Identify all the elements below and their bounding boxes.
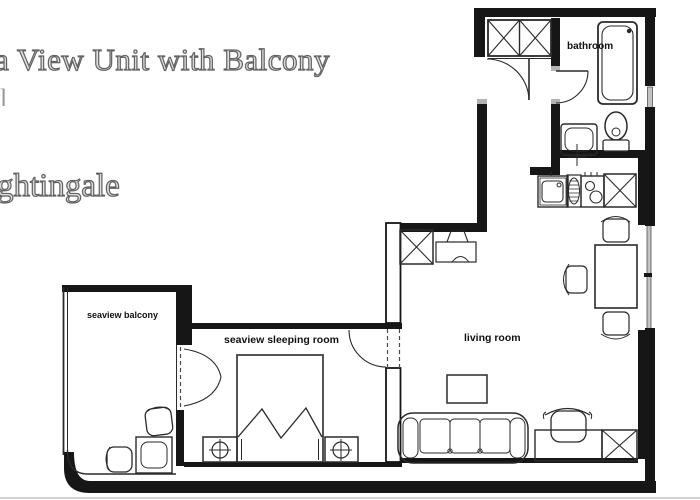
dining-table <box>595 245 637 308</box>
console-chair-seat-arc <box>452 257 469 263</box>
kitchen-drainer-unit <box>567 175 581 207</box>
wall-bathroom-bottom <box>551 150 646 158</box>
kitchen-sink-unit <box>538 171 568 207</box>
stove-burner-large <box>590 191 602 203</box>
bathroom-sink <box>561 124 597 166</box>
floorplan-screenshot: a View Unit with Balcony l ghtingale <box>0 0 700 500</box>
kitchen-sink-drain <box>557 183 561 187</box>
dining-set <box>564 217 638 340</box>
label-living: living room <box>464 332 521 344</box>
console-desk-top <box>436 242 476 262</box>
label-bedroom: seaview sleeping room <box>224 334 339 346</box>
sofa-cushion-1 <box>420 419 450 453</box>
bathroom-window-cap-top <box>645 82 655 86</box>
living-room-window <box>644 221 655 333</box>
drainer-oval <box>569 178 580 204</box>
nightstand-left-lamp-cross <box>209 439 231 461</box>
dining-chair-bottom <box>603 312 629 335</box>
bathtub <box>598 22 637 104</box>
sofa-cushion-3 <box>480 419 510 453</box>
corner-cabinet-x <box>602 430 637 461</box>
work-desk <box>535 409 602 462</box>
living-window-glass <box>647 225 651 330</box>
wall-hall-left <box>474 8 485 57</box>
entry-door <box>487 59 529 100</box>
walls <box>62 8 656 493</box>
balcony-table <box>136 437 172 473</box>
wall-right-inner-ledge-upper <box>638 157 646 225</box>
sofa-arm-right <box>510 418 525 458</box>
bedroom-door <box>349 329 400 368</box>
bathroom-door-swing-arc <box>556 71 588 103</box>
living-window-mid-tick <box>644 273 652 277</box>
sofa-arm-left <box>403 418 418 458</box>
toilet-drain <box>612 128 620 136</box>
wall-kitchen-stub <box>530 167 560 175</box>
bathroom-door <box>556 71 588 103</box>
balcony-door-arc-lower <box>184 377 221 406</box>
label-balcony: seaview balcony <box>87 310 158 320</box>
top-cabinet-x <box>400 230 433 264</box>
wall-corridor-left <box>477 103 487 227</box>
balcony-furniture <box>106 406 173 473</box>
balcony-table-inner <box>141 442 167 468</box>
bathtub-outer <box>598 22 637 104</box>
balcony-bottom-line <box>68 450 177 474</box>
stove-burner-small <box>586 182 595 191</box>
balcony-french-door <box>177 345 222 410</box>
console-desk <box>436 231 476 262</box>
balcony-door-arc-upper <box>184 349 221 377</box>
bathtub-inner <box>602 26 633 100</box>
coffee-table <box>447 375 487 403</box>
wall-right-inner-ledge-lower <box>638 330 646 459</box>
drainer-box <box>567 175 581 207</box>
bathtub-drain <box>627 29 631 33</box>
living-window-cap-bottom <box>645 328 655 333</box>
bathroom-window-glass <box>648 87 653 108</box>
nightstand-right <box>325 437 358 462</box>
balcony-chair-upper-seat <box>144 407 173 437</box>
wall-right-bathroom-upper <box>645 8 655 86</box>
wall-bottom <box>88 481 656 493</box>
doors <box>177 59 589 410</box>
balcony-chair-upper <box>144 406 173 437</box>
living-window-cap-top <box>645 221 655 226</box>
sink-basin <box>565 128 593 151</box>
wall-bedroom-top <box>176 323 402 329</box>
drainer-hatch <box>569 181 579 201</box>
shade-corridor-left <box>477 99 487 104</box>
bathroom-window <box>645 82 655 111</box>
label-bathroom: bathroom <box>567 41 613 52</box>
dining-chair-left <box>566 266 587 293</box>
wall-balcony-divider-lower <box>176 410 184 466</box>
hall-wardrobe <box>488 20 551 59</box>
floorplan-drawing: bathroom seaview balcony seaview sleepin… <box>0 0 700 500</box>
double-bed <box>237 355 323 462</box>
bathroom-window-cap-bottom <box>645 107 655 111</box>
wall-right-lower <box>645 330 655 481</box>
toilet-tank <box>603 140 629 151</box>
kitchen-cabinet-x <box>604 174 636 207</box>
wall-shading <box>477 66 560 104</box>
sofa <box>398 413 528 463</box>
nightstand-left <box>203 437 237 462</box>
entry-door-swing-arc <box>487 59 529 100</box>
office-chair-seat <box>551 411 586 442</box>
wall-bathroom-left-stub <box>551 18 560 71</box>
image-bottom-edge-line <box>0 497 700 499</box>
toilet <box>603 112 629 151</box>
bed-blanket-zigzag <box>238 408 322 438</box>
work-desk-top <box>535 430 602 461</box>
bedroom-door-swing-arc <box>349 330 386 367</box>
wall-balcony-top <box>62 285 178 292</box>
kitchen <box>538 171 636 207</box>
nightstand-right-lamp-cross <box>330 439 352 461</box>
wall-right-mid <box>645 109 655 225</box>
balcony-chair-lower <box>106 447 132 472</box>
stove <box>581 172 604 207</box>
wall-living-left-step <box>386 223 401 323</box>
dining-chair-top <box>603 219 629 242</box>
wall-balcony-divider-upper <box>176 285 192 345</box>
sofa-cushion-2 <box>450 419 480 453</box>
wall-top <box>474 8 656 17</box>
bedroom-furniture <box>203 355 358 462</box>
console-chair-back <box>447 231 468 242</box>
balcony-chair-lower-seat <box>107 447 132 472</box>
kitchen-sink-basin <box>542 181 563 202</box>
